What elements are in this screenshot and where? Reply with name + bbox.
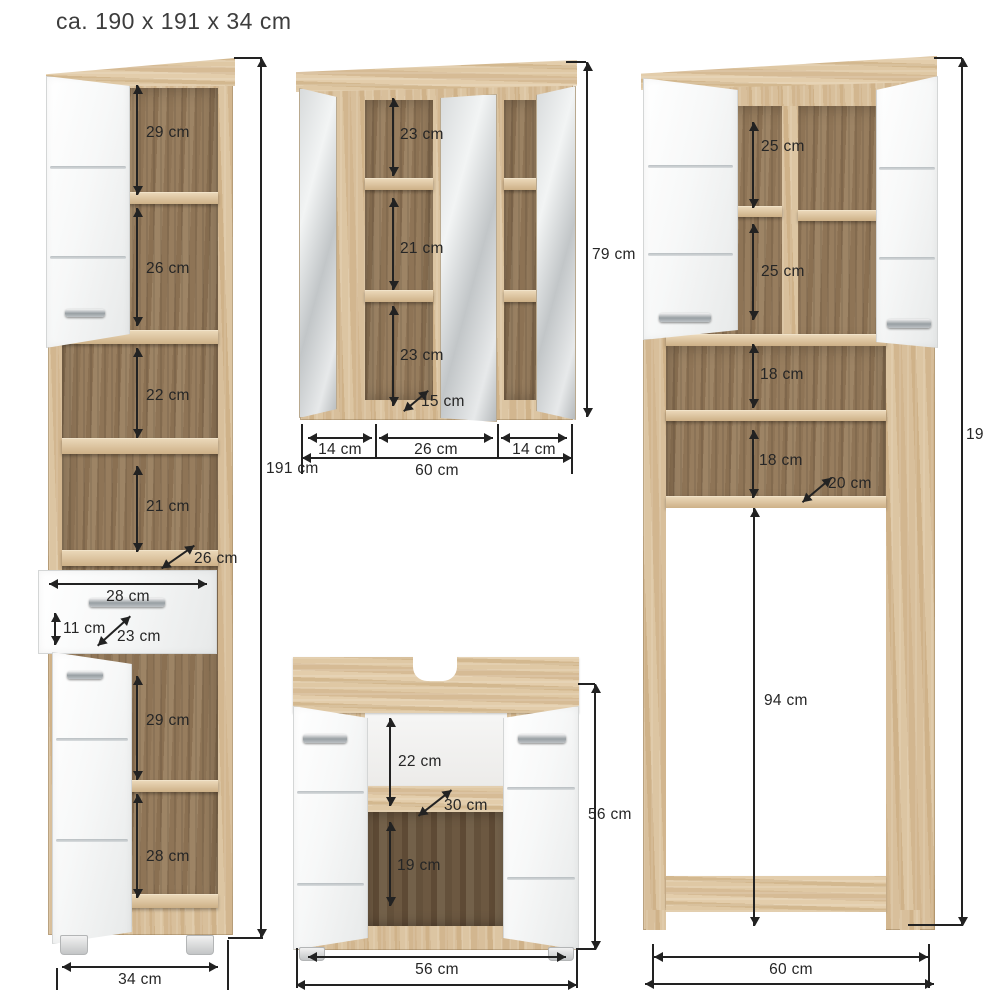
dim-label: 29 cm xyxy=(146,712,190,730)
shelf xyxy=(504,290,538,302)
dim-line-height xyxy=(586,62,588,417)
dim-line xyxy=(392,306,394,406)
dim-label: 28 cm xyxy=(146,848,190,866)
mirror-cabinet-interior-right xyxy=(504,100,538,400)
dim-label: 28 cm xyxy=(49,588,207,606)
open-door-bottom xyxy=(52,652,132,944)
cabinet-foot xyxy=(60,935,88,955)
shelf xyxy=(798,210,886,221)
dim-line xyxy=(392,198,394,290)
extension-line xyxy=(301,424,303,474)
dim-line xyxy=(308,437,372,439)
dim-label: 56 cm xyxy=(308,961,566,979)
dim-label: 34 cm xyxy=(62,971,218,989)
dim-label: 22 cm xyxy=(398,753,442,771)
dim-line xyxy=(501,437,567,439)
dim-label: 60 cm xyxy=(654,961,928,979)
open-door-right xyxy=(876,76,938,348)
dim-line xyxy=(752,430,754,498)
dim-label: 19 cm xyxy=(397,857,441,875)
open-door-left xyxy=(293,706,368,950)
dim-line xyxy=(302,457,572,459)
door-trim xyxy=(879,257,934,260)
door-trim xyxy=(297,791,364,794)
shelf xyxy=(365,290,433,302)
dim-line xyxy=(136,85,138,195)
door-trim xyxy=(648,253,734,256)
bottom-rail xyxy=(666,876,886,912)
dim-line xyxy=(136,466,138,552)
shelf xyxy=(666,334,886,346)
furniture-dimension-diagram: ca. 190 x 191 x 34 cm 29 cm xyxy=(0,0,984,990)
dim-label: 21 cm xyxy=(400,240,444,258)
door-trim xyxy=(297,883,364,886)
dim-label: 56 cm xyxy=(588,806,632,824)
dim-line xyxy=(296,984,577,986)
dim-label: 94 cm xyxy=(764,692,808,710)
dim-line xyxy=(49,583,207,585)
sink-pipe-notch xyxy=(413,653,457,681)
open-door-left xyxy=(643,78,738,340)
dim-label: 18 cm xyxy=(760,366,804,384)
shelf xyxy=(504,178,538,190)
extension-line xyxy=(497,424,499,458)
cabinet-foot xyxy=(900,910,920,930)
door-trim xyxy=(56,839,128,842)
door-handle xyxy=(303,734,347,743)
shelf xyxy=(365,178,433,190)
page-title: ca. 190 x 191 x 34 cm xyxy=(56,8,292,35)
door-handle xyxy=(67,671,103,679)
dim-label: 23 cm xyxy=(400,126,444,144)
dim-line xyxy=(136,348,138,438)
dim-line xyxy=(752,344,754,408)
dim-label: 23 cm xyxy=(400,347,444,365)
door-trim xyxy=(879,167,934,170)
mirror-door-right xyxy=(536,86,576,420)
shelf xyxy=(666,496,886,508)
dim-label: 20 cm xyxy=(828,475,872,493)
mirror-door-left xyxy=(299,88,337,418)
door-trim xyxy=(50,256,125,259)
dim-label: 25 cm xyxy=(761,138,805,156)
dim-line xyxy=(308,956,566,958)
dim-label: 60 cm xyxy=(302,462,572,480)
dim-label: 11 cm xyxy=(63,620,106,638)
extension-line xyxy=(908,924,962,926)
dim-label: 25 cm xyxy=(761,263,805,281)
dim-label: 29 cm xyxy=(146,124,190,142)
dim-label: 30 cm xyxy=(444,797,488,815)
cabinet-foot xyxy=(646,910,666,930)
dim-label: 22 cm xyxy=(146,387,190,405)
dim-line xyxy=(753,508,755,926)
cabinet-foot xyxy=(186,935,214,955)
dim-line xyxy=(752,224,754,320)
door-trim xyxy=(507,787,575,790)
dim-label: 15 cm xyxy=(421,393,465,411)
extension-line xyxy=(56,968,58,990)
extension-line xyxy=(571,424,573,474)
door-handle xyxy=(65,309,105,317)
dim-line xyxy=(54,613,56,645)
open-door-top xyxy=(46,76,130,348)
extension-line xyxy=(227,940,229,990)
dim-line-height xyxy=(961,58,963,926)
extension-line xyxy=(375,424,377,458)
dim-line xyxy=(136,676,138,780)
dim-label: 18 cm xyxy=(759,452,803,470)
dim-label: 26 cm xyxy=(146,260,190,278)
floor-gap xyxy=(666,912,886,930)
door-trim xyxy=(56,738,128,741)
dim-line xyxy=(62,966,218,968)
open-door-right xyxy=(503,706,579,950)
dim-line xyxy=(379,437,493,439)
door-trim xyxy=(507,877,575,880)
door-handle xyxy=(887,319,931,328)
dim-label: 79 cm xyxy=(592,246,636,264)
dim-label: 21 cm xyxy=(146,498,190,516)
mirror-door-center xyxy=(440,94,497,422)
dim-line xyxy=(392,98,394,176)
door-handle xyxy=(659,313,711,322)
door-trim xyxy=(648,165,734,168)
dim-label: 26 cm xyxy=(194,550,238,568)
dim-line-height xyxy=(260,58,262,938)
dim-line xyxy=(136,794,138,898)
dim-label: 23 cm xyxy=(117,628,161,646)
dim-line xyxy=(136,208,138,326)
door-handle xyxy=(518,734,566,743)
dim-line xyxy=(645,983,934,985)
shelf xyxy=(62,438,218,454)
door-trim xyxy=(50,166,125,169)
dim-line xyxy=(389,718,391,806)
dim-line xyxy=(654,956,928,958)
dim-line xyxy=(389,822,391,906)
shelf xyxy=(666,410,886,421)
dim-line xyxy=(752,122,754,208)
dim-label: 19 xyxy=(966,426,984,444)
